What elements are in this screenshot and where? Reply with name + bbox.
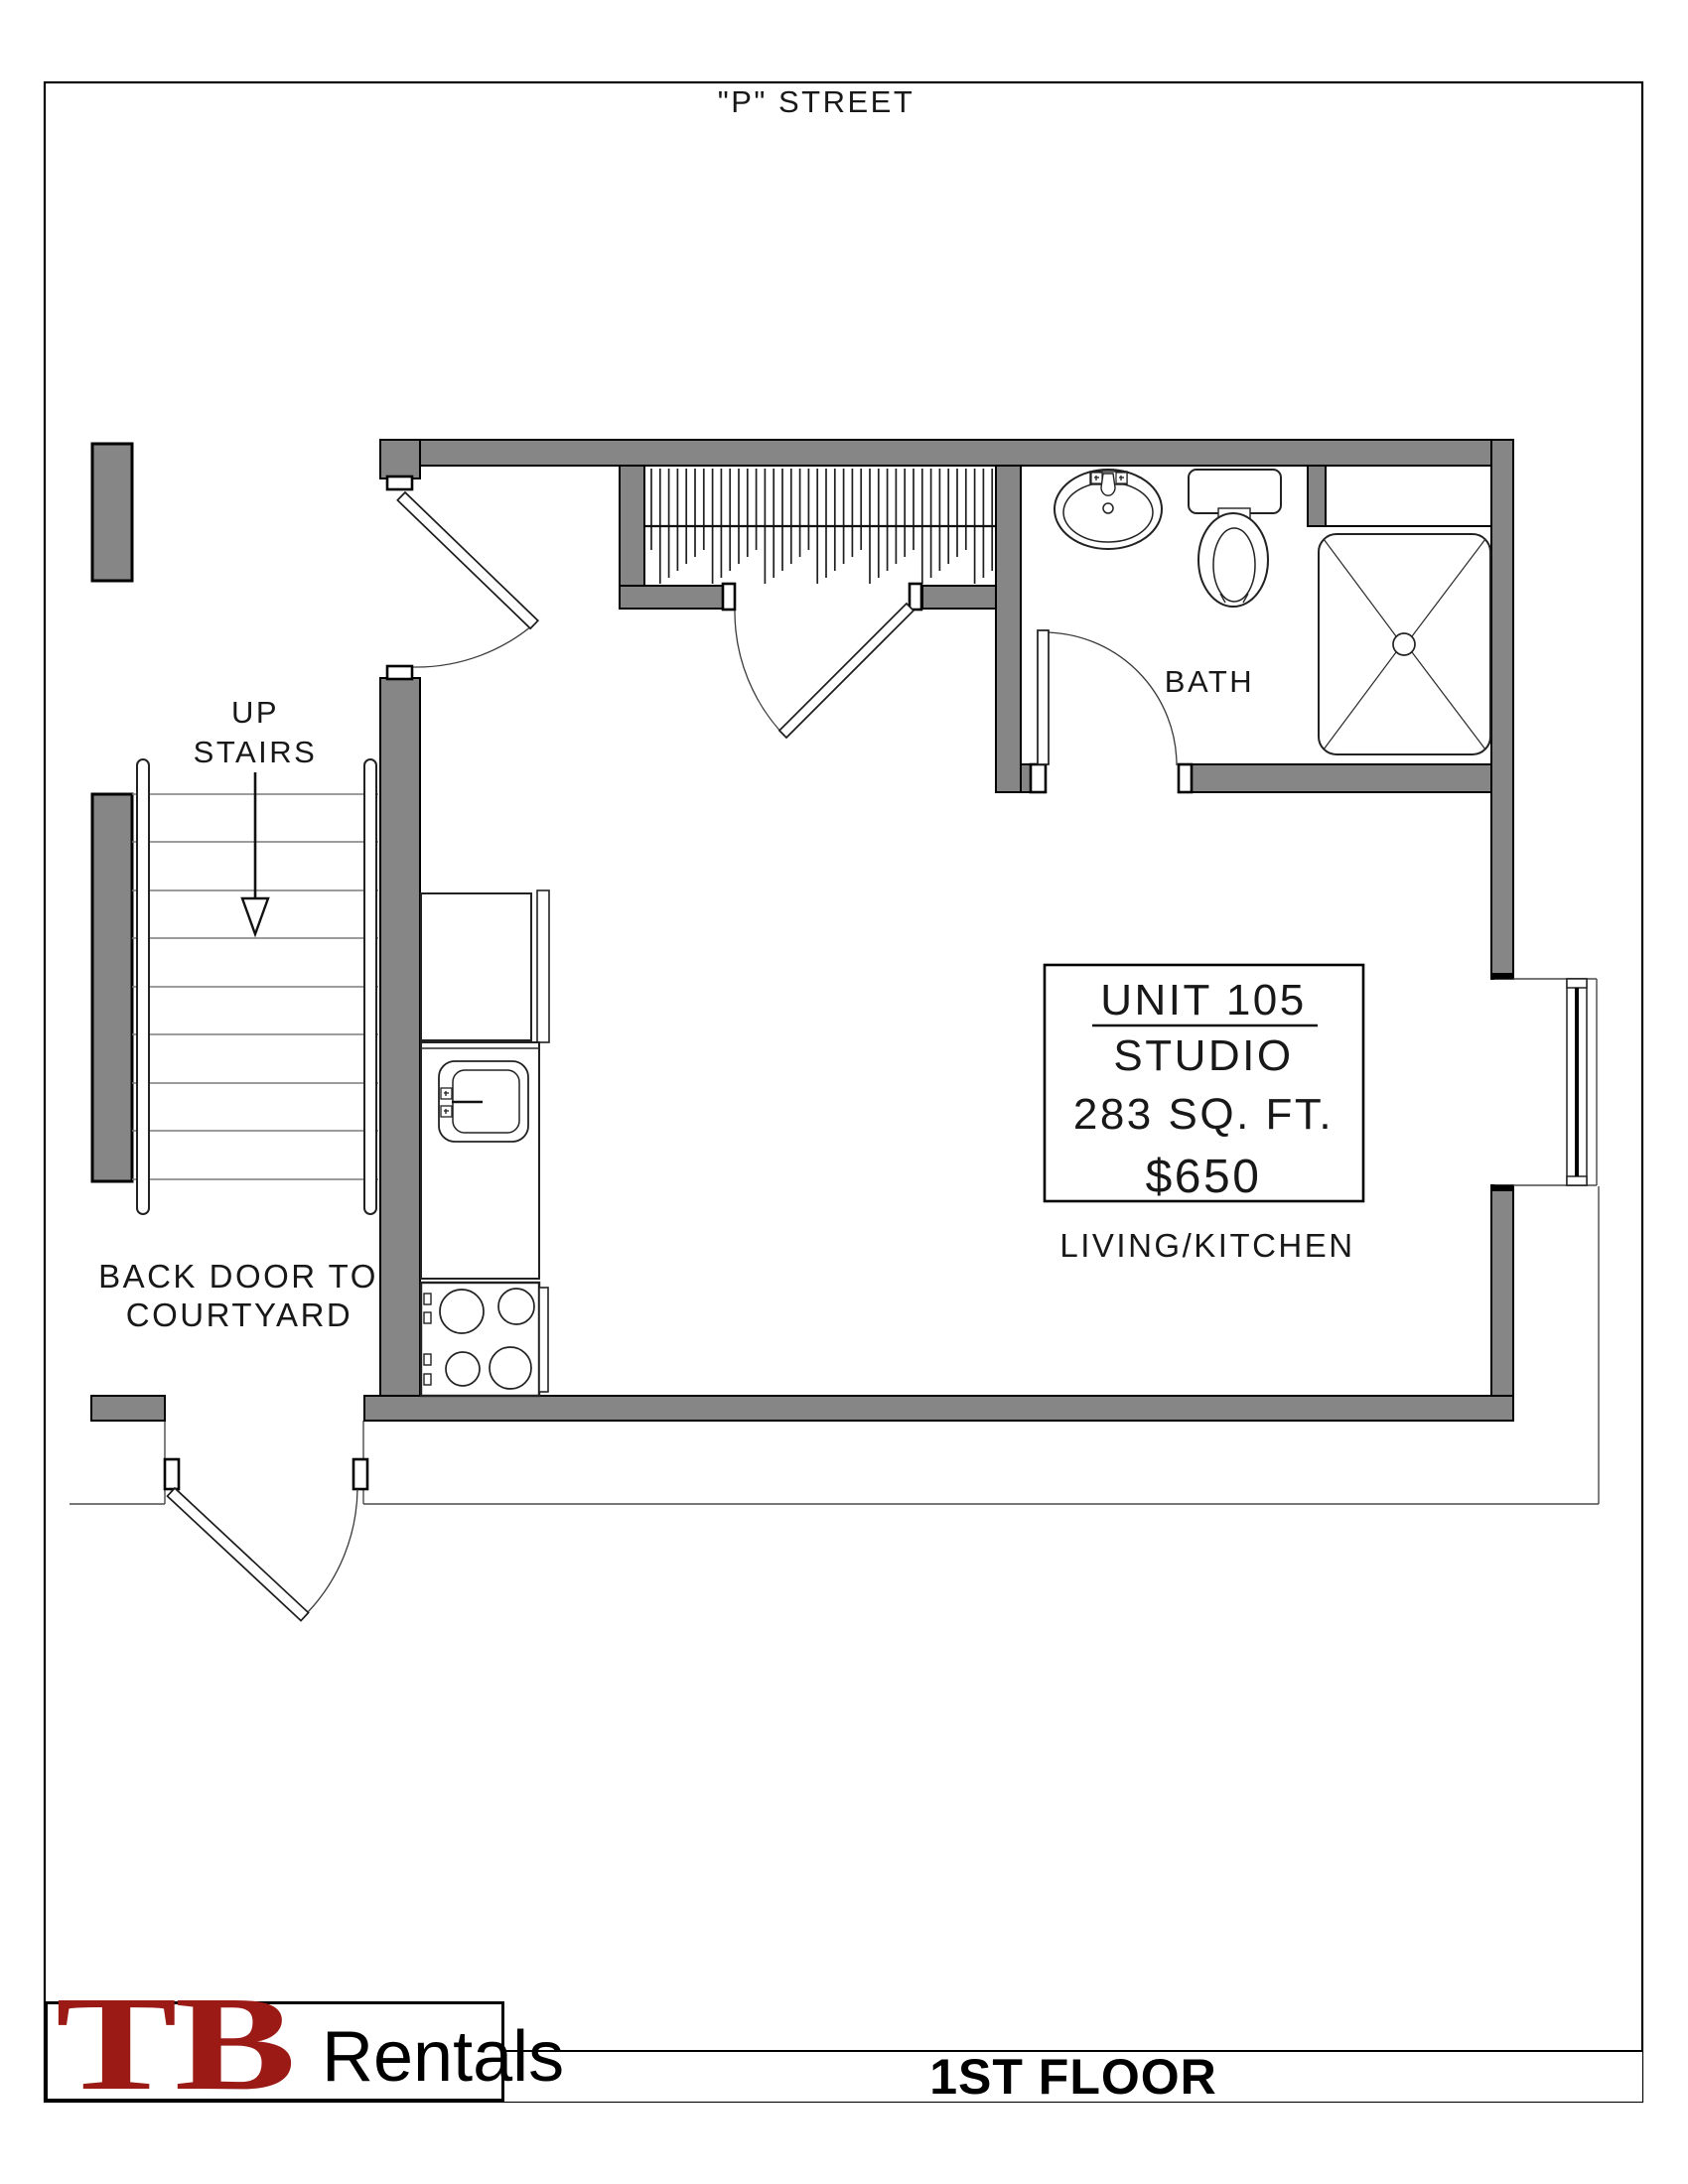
closet-door-leaf [779,604,914,738]
bath-south-wall-stub [1021,764,1031,792]
exterior-ground-lines [70,1186,1599,1504]
bay-window [1491,973,1597,1191]
back-door-jamb-left [165,1459,179,1489]
entry-door [387,477,538,679]
closet-door-jamb-left [723,584,735,610]
unit-area-label: 283 SQ. FT. [1073,1090,1334,1139]
bottom-wall-left-stub [91,1396,165,1421]
title-band: 1ST FLOOR [504,2050,1642,2102]
unit-info-box: UNIT 105 STUDIO 283 SQ. FT. $650 [1045,965,1363,1203]
bath-west-wall [996,466,1021,792]
logo-box: TB Rentals [45,2001,504,2102]
window-frame [1567,979,1587,1185]
kitchen-west-wall [380,678,420,1396]
entry-door-jamb-top [387,477,412,489]
up-stairs-label-line2: STAIRS [194,735,318,769]
entry-door-leaf [397,492,537,628]
page-border [45,82,1642,2102]
toilet-symbol [1189,470,1281,607]
stair-rail-left [137,759,149,1214]
floor-title: 1ST FLOOR [929,2048,1217,2106]
bath-label: BATH [1165,664,1254,699]
entry-door-jamb-bottom [387,666,412,679]
closet-door-arc [735,611,786,738]
bottom-wall [364,1396,1513,1421]
floor-plan-drawing: "P" STREET [0,0,1688,2184]
unit-number-label: UNIT 105 [1100,976,1307,1024]
closet-south-wall-left [620,586,735,609]
refrigerator-symbol [421,890,549,1042]
unit-type-label: STUDIO [1113,1031,1293,1080]
floor-plan-page: "P" STREET [0,0,1688,2184]
stairs [132,759,378,1214]
back-door-label-line1: BACK DOOR TO [98,1258,378,1295]
logo-rentals-text: Rentals [322,2021,564,2093]
back-door-label-line2: COURTYARD [126,1297,352,1333]
back-door-leaf [167,1488,308,1621]
closet-door-jamb-right [910,584,921,610]
bath-door-jamb-right [1179,764,1192,792]
entry-pier [380,440,420,478]
back-door-jamb-right [353,1459,367,1489]
stairwell-wall-upper [92,444,132,581]
street-label: "P" STREET [718,84,915,119]
kitchen-sink-symbol [439,1061,528,1142]
stairwell-wall-lower [92,794,132,1181]
shower-shelf [1326,466,1491,526]
top-wall [380,440,1513,466]
bath-door-arc [1044,632,1177,765]
bath-door-leaf [1038,630,1049,764]
bath-south-wall [1192,764,1491,792]
unit-price-label: $650 [1146,1151,1262,1203]
closet-south-wall-right [922,586,996,609]
logo-tb-initials: TB [56,1991,294,2097]
bath-door-jamb-left [1031,764,1046,792]
entry-door-arc [413,620,538,667]
back-door-arc [308,1489,357,1612]
up-stairs-label-line1: UP [231,695,279,730]
stair-rail-right [364,759,376,1214]
closet-door [723,584,921,738]
right-wall-lower [1491,1185,1513,1421]
shower-divider-wall [1308,466,1326,526]
stove-symbol [421,1283,548,1396]
back-door [165,1459,367,1621]
up-arrow [242,772,268,934]
bathroom-sink-symbol [1055,470,1162,549]
bath-door [1031,630,1192,792]
living-kitchen-label: LIVING/KITCHEN [1059,1227,1354,1264]
right-wall-upper [1491,440,1513,979]
shower-symbol [1319,534,1490,754]
